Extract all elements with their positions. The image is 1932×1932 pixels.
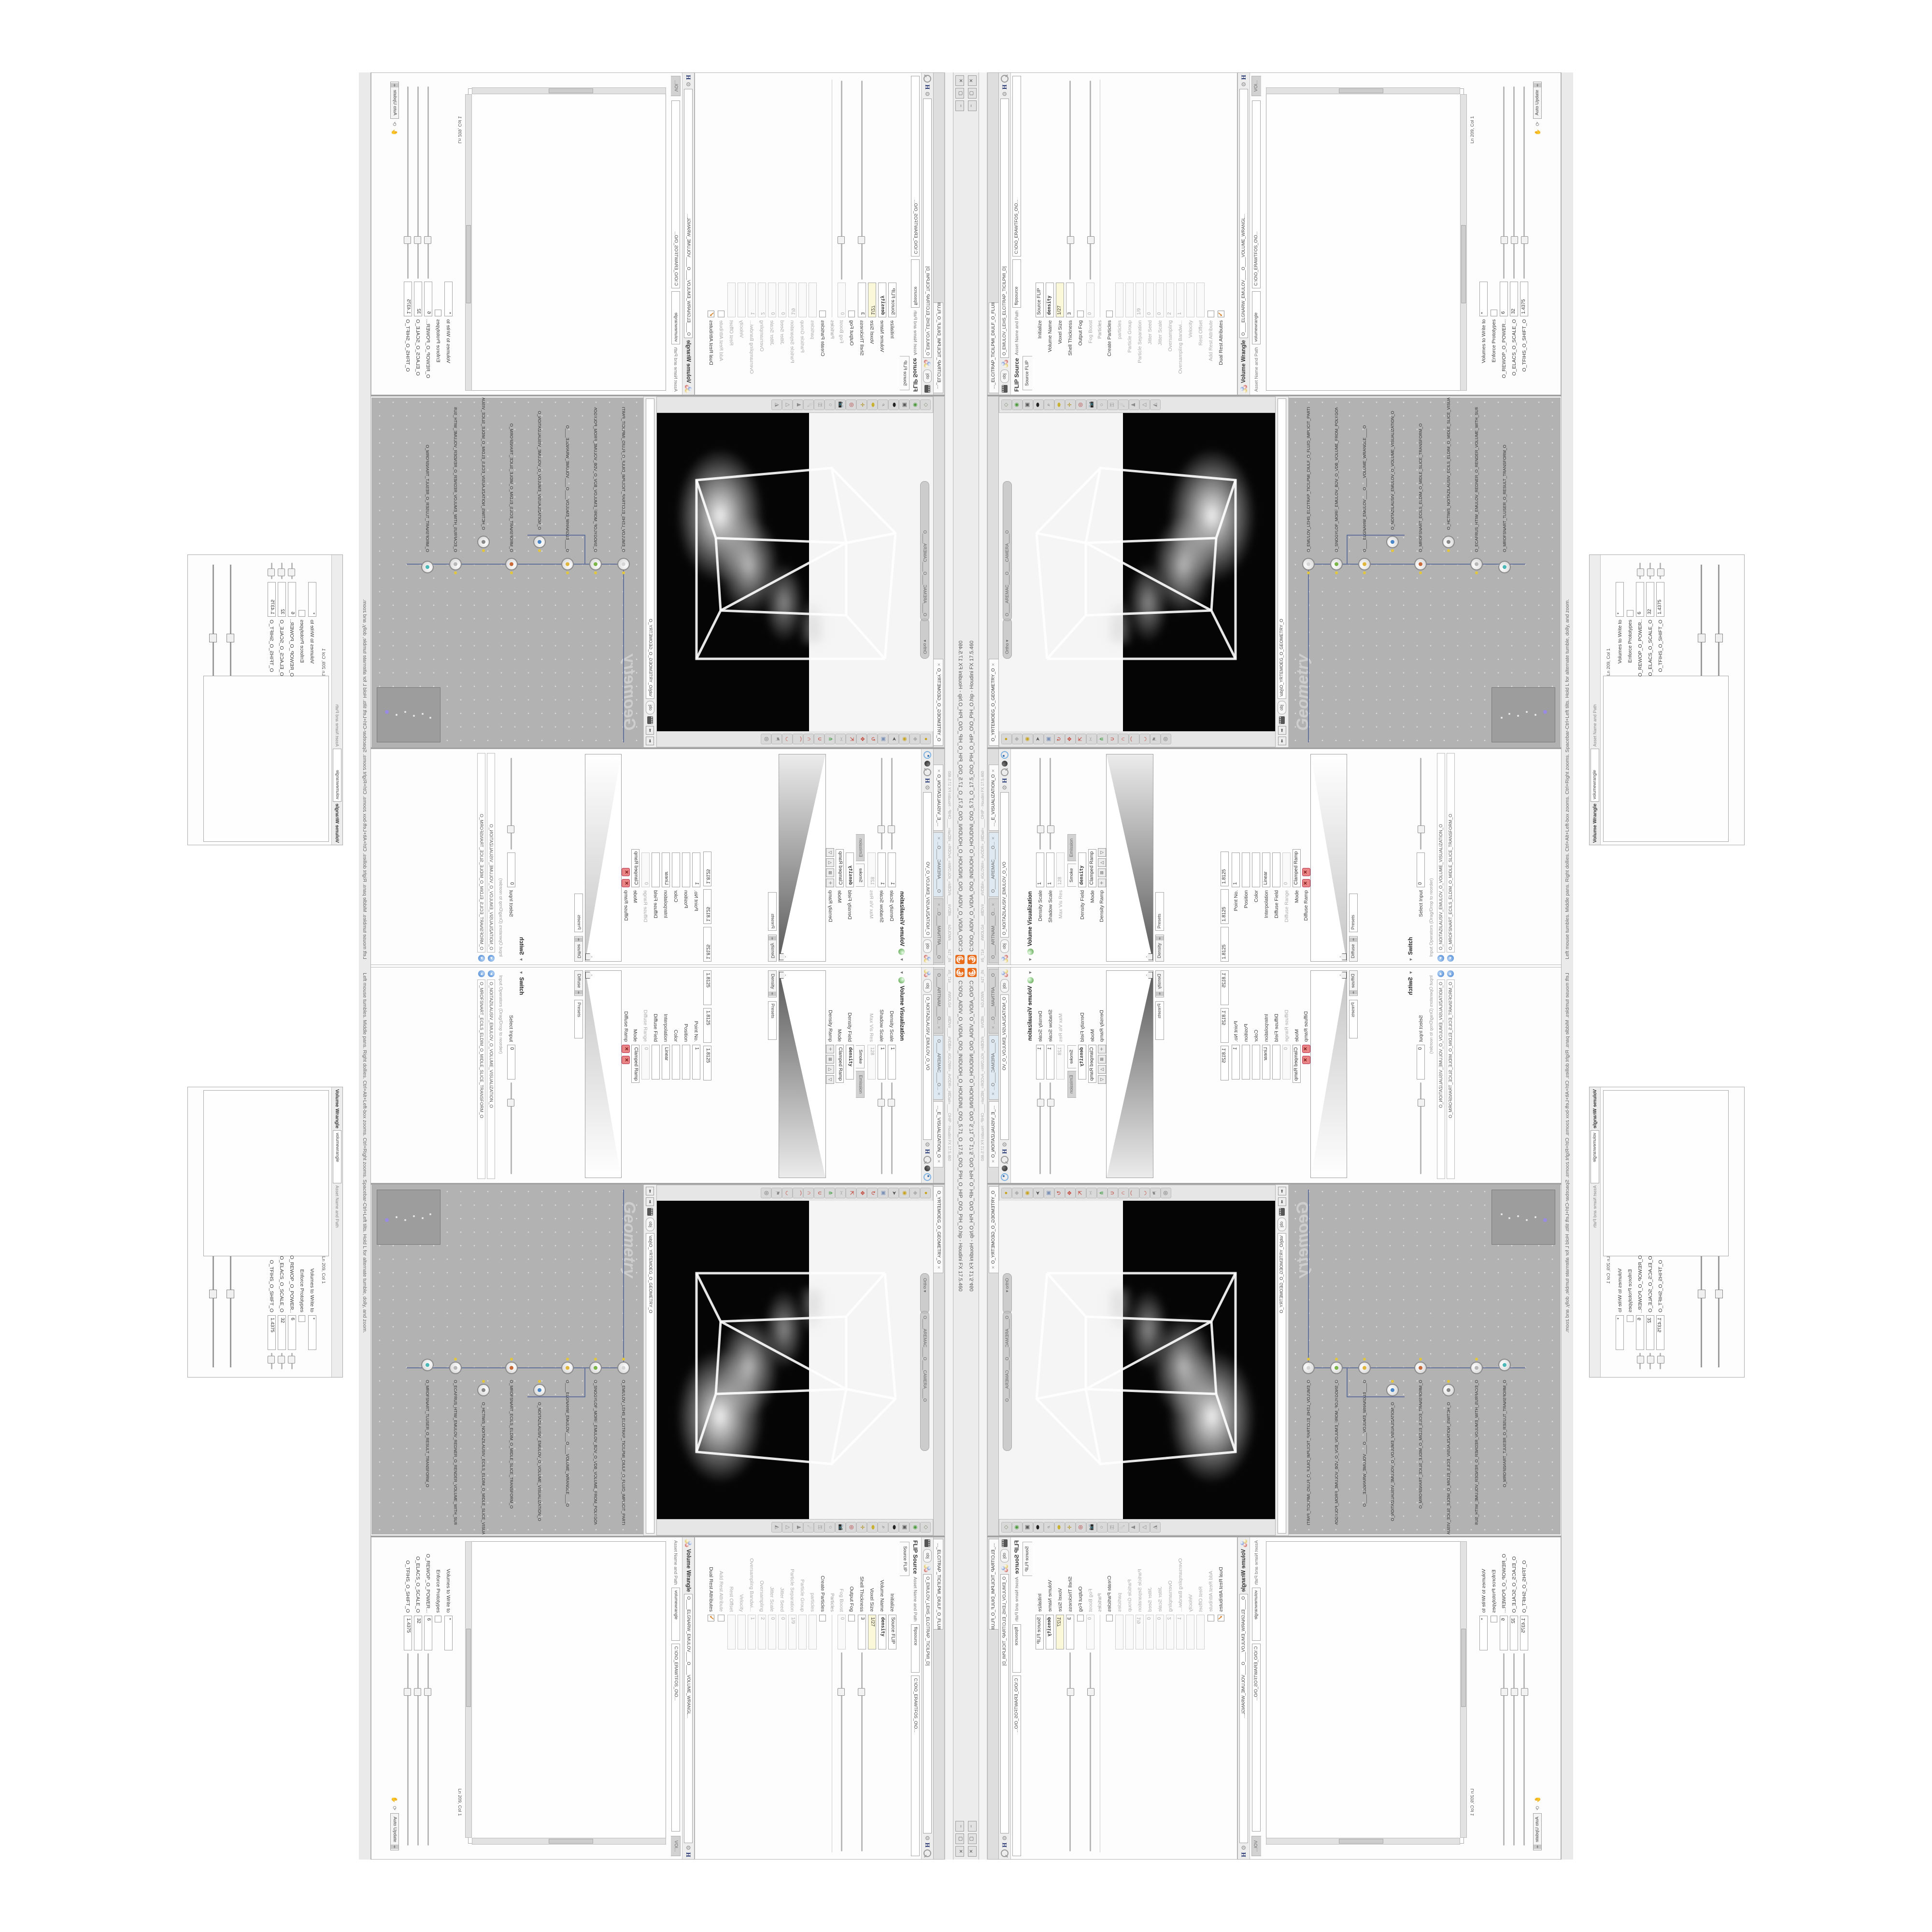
value-field[interactable]: 6 xyxy=(424,1616,432,1650)
maximize-button[interactable]: ▢ xyxy=(955,88,964,99)
param-row[interactable]: O_REWOP_O_POWER... 6 xyxy=(1499,82,1509,391)
viewport-tool-icon[interactable]: ◎ xyxy=(1161,1188,1171,1198)
value-field[interactable]: 0 xyxy=(768,283,776,317)
float-slider[interactable] xyxy=(1701,565,1702,676)
value-field[interactable]: 6 xyxy=(288,582,296,617)
param-row[interactable]: Point No. 1 xyxy=(691,970,701,1179)
param-row[interactable]: Jitter Scale 0 xyxy=(767,1540,777,1856)
network-node[interactable] xyxy=(505,558,518,570)
tab-emission[interactable]: Emission xyxy=(1067,834,1076,862)
asset-name-field[interactable]: volumewrangle xyxy=(1591,749,1599,802)
close-button[interactable]: ✕ xyxy=(968,1846,977,1857)
param-row[interactable]: Fog Boost 0 xyxy=(837,76,847,392)
checkbox[interactable] xyxy=(1207,1615,1214,1621)
pane-tab-mantra[interactable]: O____ARTNAM____O...✕ xyxy=(934,969,943,1034)
minimize-button[interactable]: − xyxy=(955,1821,964,1832)
value-field[interactable]: 1 xyxy=(748,1615,756,1649)
value-field[interactable] xyxy=(1115,1615,1123,1649)
value-field[interactable]: 1 xyxy=(1046,1045,1054,1080)
value-field[interactable]: 6 xyxy=(1500,1616,1508,1650)
value-field[interactable]: density xyxy=(1046,283,1054,317)
auto-update-combo[interactable]: Auto Update xyxy=(390,82,399,119)
value-field[interactable]: 1 xyxy=(692,1045,700,1080)
select-input-value[interactable]: 0 xyxy=(507,1045,515,1080)
param-row[interactable]: Velocity xyxy=(737,76,747,392)
value-field[interactable]: 0 xyxy=(641,1045,650,1080)
network-node[interactable] xyxy=(1498,1359,1511,1371)
param-row[interactable]: O_ELACS_O_SCALE_O 32 xyxy=(1509,82,1519,391)
viewport-display-icon[interactable]: △ xyxy=(1139,399,1150,410)
viewport-tool-icon[interactable]: ∩ xyxy=(803,1188,814,1198)
ramp-add-button[interactable]: ＋ xyxy=(1098,879,1106,887)
viewport-tool-icon[interactable]: ⚑ xyxy=(771,1188,782,1198)
slider[interactable] xyxy=(511,758,512,850)
flip-pane-tab[interactable]: ..._ELCITRAP_TICILPMI_DIULF_O_FLUID_IMPL… xyxy=(989,1539,998,1630)
value-field[interactable]: 1 xyxy=(878,1045,886,1080)
param-row[interactable]: Max Vis Res 128 xyxy=(867,970,877,1179)
tab-emission[interactable]: Emission xyxy=(1067,1071,1076,1098)
minimize-button[interactable]: − xyxy=(968,100,977,111)
network-minimap[interactable] xyxy=(377,687,440,742)
value-field[interactable]: 1/27 xyxy=(1056,1615,1064,1649)
density-ramp-widget[interactable] xyxy=(779,754,826,962)
diffuse-ramp-widget[interactable] xyxy=(1310,754,1347,962)
param-row[interactable]: Jitter Seed 0 xyxy=(1145,76,1155,392)
network-canvas[interactable]: Geometry O_EMULOV_LEHS_ELCITRAP_TICILPMI… xyxy=(371,398,643,747)
blue-rings-icon[interactable] xyxy=(923,751,931,759)
refresh-icon[interactable]: ⟳ xyxy=(392,122,398,126)
ramp-add-button[interactable]: ＋ xyxy=(1098,1045,1106,1053)
param-row[interactable]: Diffuse Range 0 xyxy=(1281,753,1292,962)
viewport-display-icon[interactable]: ◭ xyxy=(1150,1522,1161,1533)
value-field[interactable]: 1 xyxy=(692,852,700,887)
wrangle-node-name[interactable]: O____ELGNARW_EMULOV____O____VOLUME_WRANG… xyxy=(684,89,693,338)
input-link-icon[interactable]: ◂ xyxy=(488,970,495,977)
input-operator-row[interactable]: ◂ O_NOITAZILAUSIV_EMULOV_O_VOLUME_VISUAL… xyxy=(1436,970,1446,1179)
value-field[interactable]: 0 xyxy=(641,852,650,887)
viewport-tool-icon[interactable]: ∪ xyxy=(814,1188,824,1198)
ramp-value-field[interactable]: 1.8125 xyxy=(1221,970,1229,1005)
ramp-value-field[interactable]: 1.8125 xyxy=(703,1046,711,1080)
diffuse-ramp-widget[interactable] xyxy=(585,754,622,962)
value-field[interactable]: 3 xyxy=(858,283,866,317)
value-field[interactable]: 1/9 xyxy=(788,1615,796,1649)
value-field[interactable]: 1 xyxy=(1036,1045,1044,1080)
param-row[interactable]: Point No. 1 xyxy=(1231,970,1241,1179)
slider[interactable] xyxy=(417,86,419,279)
param-row[interactable]: Interpolation Linear xyxy=(661,970,671,1179)
viewport-tool-icon[interactable]: ◡ xyxy=(782,734,793,744)
param-row[interactable]: Point No. 1 xyxy=(691,753,701,962)
vex-code-editor[interactable] xyxy=(203,676,329,842)
param-row[interactable]: Color xyxy=(671,753,681,962)
select-input-value[interactable]: 0 xyxy=(1417,852,1425,887)
input-operator-row[interactable]: ◂ O_NOITAZILAUSIV_EMULOV_O_VOLUME_VISUAL… xyxy=(1436,753,1446,962)
viewport-display-icon[interactable]: ◭ xyxy=(1150,399,1161,410)
network-node[interactable] xyxy=(561,558,574,570)
delete-point-button[interactable]: ✕ xyxy=(622,868,630,876)
value-field[interactable]: 128 xyxy=(867,852,876,887)
param-row[interactable]: Particles xyxy=(1095,76,1104,392)
param-row[interactable]: particles xyxy=(808,76,818,392)
param-row[interactable]: Oversampling Bandwi... 1 xyxy=(1175,1540,1185,1856)
viewport-tool-icon[interactable]: ◉ xyxy=(1023,1188,1033,1198)
asset-name-field[interactable]: volumewrangle xyxy=(1252,1588,1261,1641)
dark-sphere-icon[interactable] xyxy=(924,1165,930,1171)
viewport-display-icon[interactable]: ⬬ xyxy=(1033,1522,1044,1533)
ramp-value-field[interactable]: 1.8125 xyxy=(1221,889,1229,924)
float-slider[interactable] xyxy=(1701,1256,1702,1367)
float-slider[interactable] xyxy=(230,565,231,676)
network-node[interactable] xyxy=(1470,558,1483,570)
enforce-checkbox[interactable] xyxy=(1627,1315,1634,1322)
network-node[interactable] xyxy=(1414,558,1427,570)
value-field[interactable]: Source FLIP xyxy=(888,283,896,317)
param-row[interactable]: Diffuse Field xyxy=(651,753,661,962)
viewport-display-icon[interactable]: 📷 xyxy=(1086,1522,1097,1533)
viewport-tool-icon[interactable]: ◎ xyxy=(1161,734,1171,744)
value-field[interactable]: 0 xyxy=(778,1615,786,1649)
viewport-tool-icon[interactable]: ◎ xyxy=(761,734,771,744)
viewport-tool-icon[interactable]: ∪ xyxy=(1108,734,1118,744)
param-row[interactable]: Initialize Source FLIP xyxy=(1035,1540,1045,1856)
slider[interactable] xyxy=(861,81,863,280)
slider[interactable] xyxy=(271,1353,272,1369)
param-row[interactable]: Position xyxy=(681,970,691,1179)
volumes-value[interactable]: * xyxy=(444,282,453,316)
presets-button[interactable]: Presets xyxy=(574,1000,583,1038)
param-row[interactable]: Mode Clamped Ramp xyxy=(1087,970,1097,1179)
input-link-icon[interactable]: ◂ xyxy=(1437,955,1444,962)
presets-button[interactable]: Presets xyxy=(1155,892,1164,931)
nav-back-icon[interactable]: ⬅ xyxy=(1278,1187,1286,1195)
param-row[interactable]: O_REWOP_O_POWER... 6 xyxy=(287,1255,297,1374)
value-field[interactable]: 128 xyxy=(867,1045,876,1080)
viewport-display-icon[interactable]: ◇ xyxy=(920,399,931,410)
network-path[interactable]: \obj\O_YRTEMOEG_O_GEOMETRY_O xyxy=(646,1233,654,1534)
value-field[interactable]: 1/27 xyxy=(868,283,876,317)
network-node[interactable] xyxy=(1386,1384,1399,1396)
hand-icon[interactable]: ✋ xyxy=(1534,129,1541,136)
network-node[interactable] xyxy=(561,1362,574,1374)
flip-node-name[interactable]: O_EMULOV_LEHS_ELCITRAP_TICILPMI_D] xyxy=(1000,1574,1009,1833)
viewport-display-icon[interactable]: ◭ xyxy=(771,1522,782,1533)
param-row[interactable]: Dual Rest Attributes xyxy=(1216,76,1226,392)
viewport-tool-icon[interactable]: ↻ xyxy=(1054,1188,1065,1198)
window-titlebar[interactable]: C:\O\O_AIDIV_O_VIDIA_O\O_INIDUOH_O_HOUDI… xyxy=(966,72,979,966)
checkbox[interactable] xyxy=(849,1615,855,1621)
param-row[interactable]: Density Scale 1 xyxy=(1035,970,1045,1179)
gear-icon[interactable]: ⚙ xyxy=(1001,785,1008,790)
viewport-display-icon[interactable]: ▣ xyxy=(1023,399,1033,410)
param-row[interactable]: Volume Name density xyxy=(1045,76,1055,392)
value-field[interactable]: Clamped Ramp xyxy=(1088,1045,1096,1083)
enforce-checkbox[interactable] xyxy=(1491,1616,1497,1622)
refresh-icon[interactable]: ⟳ xyxy=(1534,1806,1541,1810)
close-button[interactable]: ✕ xyxy=(955,75,964,86)
viewport-tool-icon[interactable]: ◉ xyxy=(1023,734,1033,744)
param-row[interactable]: Shadow Scale 1 xyxy=(877,970,887,1179)
value-field[interactable] xyxy=(809,283,817,317)
input-link-icon[interactable]: ◂ xyxy=(1447,955,1454,962)
value-field[interactable]: Linear xyxy=(1262,1045,1270,1080)
collapse-triangle-icon[interactable]: ▼ xyxy=(899,970,904,975)
checkbox[interactable] xyxy=(708,311,715,317)
param-row[interactable]: Position xyxy=(1241,970,1251,1179)
value-field[interactable] xyxy=(652,852,660,887)
value-field[interactable]: 1/27 xyxy=(868,1615,876,1649)
volumes-value[interactable]: * xyxy=(1479,1616,1488,1650)
value-field[interactable]: 32 xyxy=(414,282,422,316)
viewport-display-icon[interactable]: ◎ xyxy=(846,399,856,410)
value-field[interactable]: 1/9 xyxy=(1136,283,1144,317)
projection-pill[interactable]: Ortho ▾ xyxy=(1003,618,1012,659)
float-slider[interactable] xyxy=(1718,1256,1719,1367)
viewport-tool-icon[interactable]: ✂ xyxy=(835,734,846,744)
flip-node-name[interactable]: O_EMULOV_LEHS_ELCITRAP_TICILPMI_D] xyxy=(1000,99,1009,358)
param-row[interactable]: Jitter Seed 0 xyxy=(777,1540,787,1856)
value-field[interactable]: 0 xyxy=(1282,852,1291,887)
ramp-value-field[interactable]: 1.8125 xyxy=(703,1008,711,1043)
ramp-value-field[interactable]: 1.8125 xyxy=(703,970,711,1005)
viewport-display-icon[interactable]: ⚿ xyxy=(1108,399,1118,410)
value-field[interactable] xyxy=(1196,1615,1205,1649)
value-field[interactable]: Clamped Ramp xyxy=(631,849,639,887)
param-row[interactable]: Density Scale 1 xyxy=(1035,753,1045,962)
param-row[interactable]: O_REWOP_O_POWER... 6 xyxy=(423,1541,433,1850)
asset-path-field[interactable]: C:\O\O_ERAWTFOS_O\O... xyxy=(911,1676,920,1856)
code-hscrollbar[interactable] xyxy=(465,94,472,391)
param-row[interactable]: Particle Separation 1/9 xyxy=(1135,1540,1145,1856)
param-row[interactable]: Initialize Source FLIP xyxy=(1035,76,1045,392)
ramp-down-button[interactable]: ▽ xyxy=(826,848,835,857)
viewport-tool-icon[interactable]: ✂ xyxy=(835,1188,846,1198)
viewport-display-icon[interactable]: ○ xyxy=(824,1522,835,1533)
ramp-add-button[interactable]: ＋ xyxy=(826,879,835,887)
param-row[interactable]: Color xyxy=(1251,753,1261,962)
input-link-icon[interactable]: ◂ xyxy=(478,955,485,962)
network-canvas[interactable]: Geometry O_EMULOV_LEHS_ELCITRAP_TICILPMI… xyxy=(1289,1185,1561,1534)
ramp-grid-button[interactable]: ⊞ xyxy=(1098,1055,1106,1064)
nav-forward-icon[interactable]: ➡ xyxy=(646,726,654,735)
asset-name-field[interactable]: flipsource xyxy=(1012,1624,1021,1673)
nav-forward-icon[interactable]: ➡ xyxy=(646,1197,654,1206)
value-field[interactable]: 2 xyxy=(758,1615,766,1649)
network-canvas[interactable]: Geometry O_EMULOV_LEHS_ELCITRAP_TICILPMI… xyxy=(371,1185,643,1534)
tab-smoke[interactable]: Smoke xyxy=(856,1045,865,1068)
blue-rings-icon[interactable] xyxy=(1001,751,1009,759)
ramp-up-button[interactable]: △ xyxy=(1098,858,1106,867)
network-node[interactable] xyxy=(1442,1384,1455,1396)
param-row[interactable]: Position xyxy=(1241,753,1251,962)
slider[interactable] xyxy=(841,81,842,280)
slider[interactable] xyxy=(1503,1653,1505,1846)
value-field[interactable]: 0 xyxy=(838,283,846,317)
folder-tab[interactable]: Source FLIP xyxy=(1023,1542,1032,1576)
param-row[interactable]: O_REWOP_O_POWER... 6 xyxy=(1635,1255,1645,1374)
param-row[interactable]: Shell Thickness 3 xyxy=(1065,1540,1075,1856)
auto-update-combo[interactable]: Auto Update xyxy=(1533,1813,1542,1850)
viewport-tool-icon[interactable]: ⋔ xyxy=(824,734,835,744)
param-row[interactable]: Add Rest Attribute xyxy=(716,1540,726,1856)
ramp-value-field[interactable]: 1.8125 xyxy=(703,889,711,924)
folder-tab[interactable]: VOl... xyxy=(1251,76,1261,96)
value-field[interactable]: density xyxy=(846,852,854,887)
value-field[interactable]: 0 xyxy=(1086,1615,1094,1649)
slider[interactable] xyxy=(1420,758,1421,850)
viewport-display-icon[interactable]: ○ xyxy=(824,399,835,410)
camera-pill[interactable]: O____AREMAC____O____CAMERA____O xyxy=(920,481,929,621)
viewport-tool-icon[interactable]: ⋔ xyxy=(1097,734,1108,744)
param-row[interactable]: Mode Clamped Ramp xyxy=(835,753,845,962)
param-row[interactable]: Interpolation Linear xyxy=(1261,753,1271,962)
viewport-tool-icon[interactable]: ⌒ xyxy=(793,1188,803,1198)
value-field[interactable]: 0 xyxy=(838,1615,846,1649)
ramp-down-button[interactable]: ▽ xyxy=(1098,1075,1106,1084)
param-row[interactable]: Particles xyxy=(828,1540,837,1856)
value-field[interactable]: 0 xyxy=(1146,283,1154,317)
value-field[interactable] xyxy=(1115,283,1123,317)
param-row[interactable]: Density Field density xyxy=(1077,753,1087,962)
ramp-up-button[interactable]: △ xyxy=(1098,1065,1106,1074)
value-field[interactable]: 6 xyxy=(1636,582,1644,617)
value-field[interactable]: Source FLIP xyxy=(1036,1615,1044,1649)
viewport-tool-icon[interactable]: ⌒ xyxy=(1129,734,1139,744)
window-titlebar[interactable]: C:\O\O_AIDIV_O_VIDIA_O\O_INIDUOH_O_HOUDI… xyxy=(966,966,979,1860)
viewport-display-icon[interactable]: ✛ xyxy=(1065,1522,1076,1533)
value-field[interactable]: 1 xyxy=(1232,1045,1240,1080)
value-field[interactable]: 0 xyxy=(1086,283,1094,317)
param-row[interactable]: Create Particles xyxy=(1104,76,1114,392)
viewport-tool-icon[interactable]: ➤ xyxy=(888,734,899,744)
ramp-value-field[interactable]: 1.8125 xyxy=(1221,852,1229,886)
volumes-value[interactable]: * xyxy=(1616,582,1624,617)
viewport-canvas[interactable]: Ortho ▾ O____AREMAC____O____CAMERA____O xyxy=(657,413,933,731)
ramp-marker[interactable] xyxy=(585,972,592,979)
slider[interactable] xyxy=(281,1353,283,1369)
window-titlebar[interactable]: C:\O\O_AIDIV_O_VIDIA_O\O_INIDUOH_O_HOUDI… xyxy=(953,72,966,966)
checkbox[interactable] xyxy=(1218,311,1224,317)
slider[interactable] xyxy=(881,1082,882,1174)
network-path[interactable]: \obj\O_YRTEMOEG_O_GEOMETRY_O xyxy=(1278,1233,1286,1534)
float-slider[interactable] xyxy=(1718,565,1719,676)
param-row[interactable]: O_TFIHS_O_SHIFT_O 1.4375 xyxy=(403,82,413,391)
maximize-button[interactable]: ▢ xyxy=(968,1833,977,1844)
param-row[interactable]: Density Field density xyxy=(1077,970,1087,1179)
value-field[interactable] xyxy=(738,283,746,317)
param-row[interactable]: Volume Name density xyxy=(877,76,887,392)
density-combo[interactable]: Density xyxy=(768,970,777,997)
breadcrumb[interactable]: obj xyxy=(1000,979,1009,993)
network-node[interactable] xyxy=(589,558,602,570)
input-operator-row[interactable]: ◂ O_NOITAZILAUSIV_EMULOV_O_VOLUME_VISUAL… xyxy=(486,753,496,962)
viewport-display-icon[interactable]: ☄ xyxy=(803,1522,814,1533)
viewport-display-icon[interactable]: ◇ xyxy=(1001,399,1012,410)
param-row[interactable]: Jitter Scale 0 xyxy=(767,76,777,392)
flip-breadcrumb[interactable]: obj xyxy=(923,369,932,383)
network-node[interactable] xyxy=(1442,536,1455,548)
viewport-display-icon[interactable]: ⬬ xyxy=(888,1522,899,1533)
value-field[interactable] xyxy=(1252,1045,1260,1080)
viewport-tool-icon[interactable]: ⇱ xyxy=(846,1188,856,1198)
value-field[interactable]: 32 xyxy=(278,1315,286,1350)
density-ramp-widget[interactable] xyxy=(1106,754,1153,962)
network-path[interactable]: \obj\O_YRTEMOEG_O_GEOMETRY_O xyxy=(646,398,654,699)
viewport-display-icon[interactable]: ▣ xyxy=(899,399,909,410)
param-row[interactable]: O_REWOP_O_POWER... 6 xyxy=(287,558,297,677)
value-field[interactable]: 1/27 xyxy=(1056,283,1064,317)
value-field[interactable]: 3 xyxy=(1066,1615,1074,1649)
viewport-tool-icon[interactable]: ✥ xyxy=(856,1188,867,1198)
viewport-display-icon[interactable]: ◇ xyxy=(920,1522,931,1533)
asset-name-field[interactable]: flipsource xyxy=(1012,259,1021,308)
viewport-tool-icon[interactable]: ◡ xyxy=(1139,1188,1150,1198)
vex-code-editor[interactable] xyxy=(1603,1090,1729,1256)
viewport-display-icon[interactable]: ✛ xyxy=(1065,399,1076,410)
collapse-triangle-icon[interactable]: ▼ xyxy=(1028,957,1033,962)
param-row[interactable]: Oversampling 2 xyxy=(1165,1540,1175,1856)
viewport-tool-icon[interactable]: ⌒ xyxy=(1129,1188,1139,1198)
value-field[interactable]: Linear xyxy=(662,1045,670,1080)
network-node[interactable] xyxy=(1498,561,1511,573)
volumes-value[interactable]: * xyxy=(1616,1315,1624,1350)
param-row[interactable]: O_REWOP_O_POWER... 6 xyxy=(1499,1541,1509,1850)
value-field[interactable]: 1.4375 xyxy=(268,582,276,617)
checkbox[interactable] xyxy=(1207,311,1214,317)
param-row[interactable]: Rest Offset xyxy=(1195,76,1206,392)
enforce-checkbox[interactable] xyxy=(435,310,442,316)
value-field[interactable]: Linear xyxy=(1262,852,1270,887)
value-field[interactable] xyxy=(652,1045,660,1080)
nav-forward-icon[interactable]: ➡ xyxy=(1278,1197,1286,1206)
value-field[interactable]: 32 xyxy=(414,1616,422,1650)
gear-icon[interactable]: ⚙ xyxy=(685,82,692,87)
slider[interactable] xyxy=(1660,1353,1661,1369)
param-row[interactable]: Oversampling 2 xyxy=(757,1540,767,1856)
network-path[interactable]: \obj\O_YRTEMOEG_O_GEOMETRY_O xyxy=(1278,398,1286,699)
param-row[interactable]: Volume Name density xyxy=(877,1540,887,1856)
pane-tab-camera[interactable]: O____AREMAC____O...✕ xyxy=(934,1035,943,1100)
value-field[interactable]: 1 xyxy=(1046,852,1054,887)
value-field[interactable] xyxy=(727,283,736,317)
viewport-tool-icon[interactable]: ↻ xyxy=(867,734,878,744)
hand-icon[interactable]: ✋ xyxy=(392,129,398,136)
value-field[interactable] xyxy=(672,852,680,887)
viewport-display-icon[interactable]: ⌕ xyxy=(1044,399,1054,410)
viewport-tool-icon[interactable]: ▣ xyxy=(878,1188,888,1198)
tab-smoke[interactable]: Smoke xyxy=(856,864,865,887)
param-row[interactable]: Output Fog xyxy=(847,1540,857,1856)
ramp-marker[interactable] xyxy=(779,972,786,979)
code-vscrollbar[interactable] xyxy=(472,87,666,94)
param-row[interactable]: O_ELACS_O_SCALE_O 32 xyxy=(1645,558,1655,677)
slider[interactable] xyxy=(1523,1653,1525,1846)
network-canvas[interactable]: Geometry O_EMULOV_LEHS_ELCITRAP_TICILPMI… xyxy=(1289,398,1561,747)
viewport-display-icon[interactable]: ◎ xyxy=(846,1522,856,1533)
viewport-tool-icon[interactable]: ∩ xyxy=(1118,734,1129,744)
viewport-tool-icon[interactable]: ● xyxy=(920,1188,931,1198)
asset-name-field[interactable]: volumewrangle xyxy=(671,1588,680,1641)
param-row[interactable]: Create Particles xyxy=(818,76,828,392)
network-node[interactable] xyxy=(1358,1362,1371,1374)
value-field[interactable]: 1.4375 xyxy=(1520,1616,1528,1650)
checkbox[interactable] xyxy=(1077,1615,1084,1621)
density-combo[interactable]: Density xyxy=(1155,970,1164,997)
value-field[interactable]: 1.4375 xyxy=(404,1616,412,1650)
param-row[interactable]: Shell Thickness 3 xyxy=(857,1540,867,1856)
viewport-display-icon[interactable]: ◉ xyxy=(1012,1522,1023,1533)
value-field[interactable]: Clamped Ramp xyxy=(836,849,844,887)
